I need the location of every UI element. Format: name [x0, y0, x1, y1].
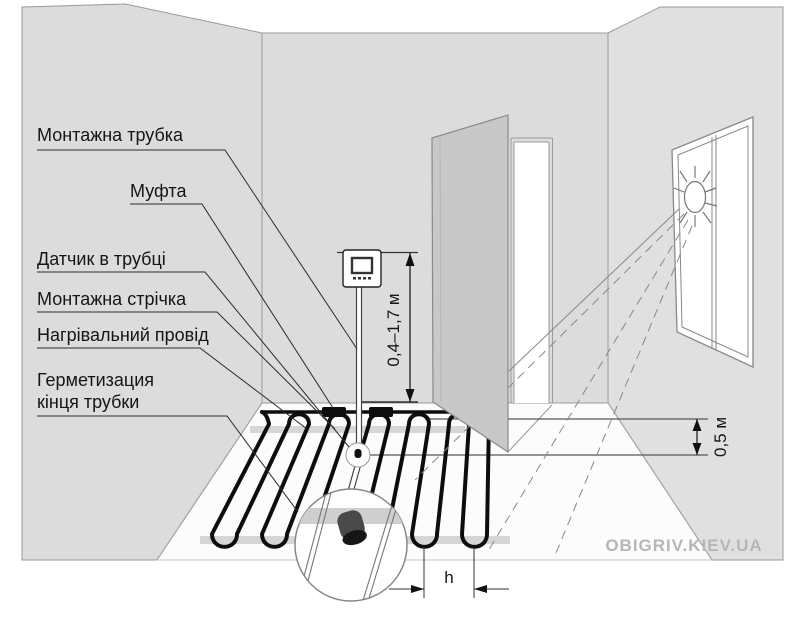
watermark: OBIGRIV.KIEV.UA — [605, 536, 762, 555]
label-sealing-line2: кінця трубки — [37, 392, 139, 412]
mounting-tube — [356, 287, 362, 452]
diagram-canvas: Монтажна трубка Муфта Датчик в трубці Мо… — [0, 0, 800, 623]
doorway-opening — [514, 142, 549, 403]
label-sensor: Датчик в трубці — [37, 249, 166, 269]
label-sealing-line1: Герметизация — [37, 370, 154, 390]
thermostat-display — [352, 258, 372, 273]
magnifier-detail-circle — [293, 489, 409, 605]
installation-diagram: Монтажна трубка Муфта Датчик в трубці Мо… — [0, 0, 800, 623]
door — [432, 115, 508, 452]
label-mounting-tube: Монтажна трубка — [37, 125, 184, 145]
coupling — [369, 407, 393, 417]
dimension-cable-spacing-value: h — [444, 568, 453, 587]
label-cable: Нагрівальний провід — [37, 325, 209, 345]
door-panel — [432, 115, 508, 452]
dimension-wall-indent-value: 0,5 м — [711, 417, 730, 457]
dimension-thermostat-height-value: 0,4–1,7 м — [384, 293, 403, 366]
label-tape: Монтажна стрічка — [37, 289, 187, 309]
label-coupling: Муфта — [130, 181, 187, 201]
coupling — [322, 407, 346, 417]
tube-tip — [355, 449, 362, 458]
window — [672, 117, 753, 367]
